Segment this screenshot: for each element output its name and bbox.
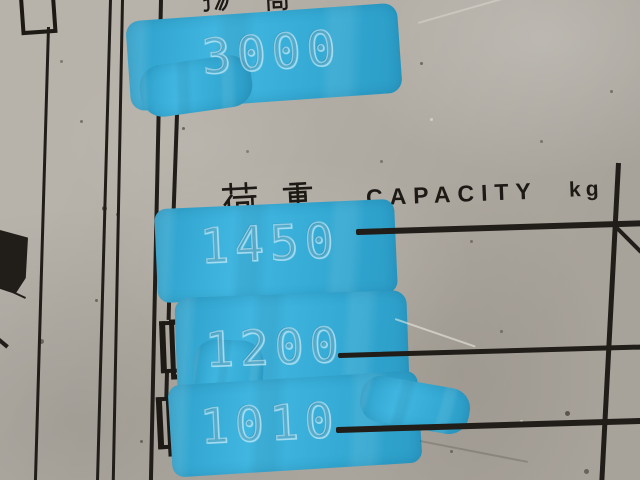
leader-line [356, 220, 640, 235]
diagram-small-rect [18, 0, 57, 35]
capacity-axis-line [599, 163, 620, 480]
diagram-tick [0, 336, 9, 348]
diagram-arrow-shape [0, 230, 28, 294]
mast-line [96, 0, 112, 480]
mast-line [112, 0, 124, 480]
capacity-value: 1450 [199, 217, 341, 271]
box-bracket [159, 321, 177, 374]
diagonal-line [616, 227, 640, 254]
dirt-specks [0, 0, 3, 3]
scratch-mark [418, 0, 515, 23]
capacity-unit: kg [569, 178, 604, 200]
capacity-value: 1010 [199, 397, 341, 452]
forklift-capacity-plate-photo: 揚 高 3000 荷 重 CAPACITY kg 1450 1200 10 [0, 0, 640, 480]
mast-line [34, 27, 50, 480]
lift-height-kanji [201, 0, 233, 14]
capacity-value: 1200 [204, 321, 345, 374]
lift-height-value: 3000 [200, 24, 343, 82]
scratch-mark [420, 440, 528, 462]
